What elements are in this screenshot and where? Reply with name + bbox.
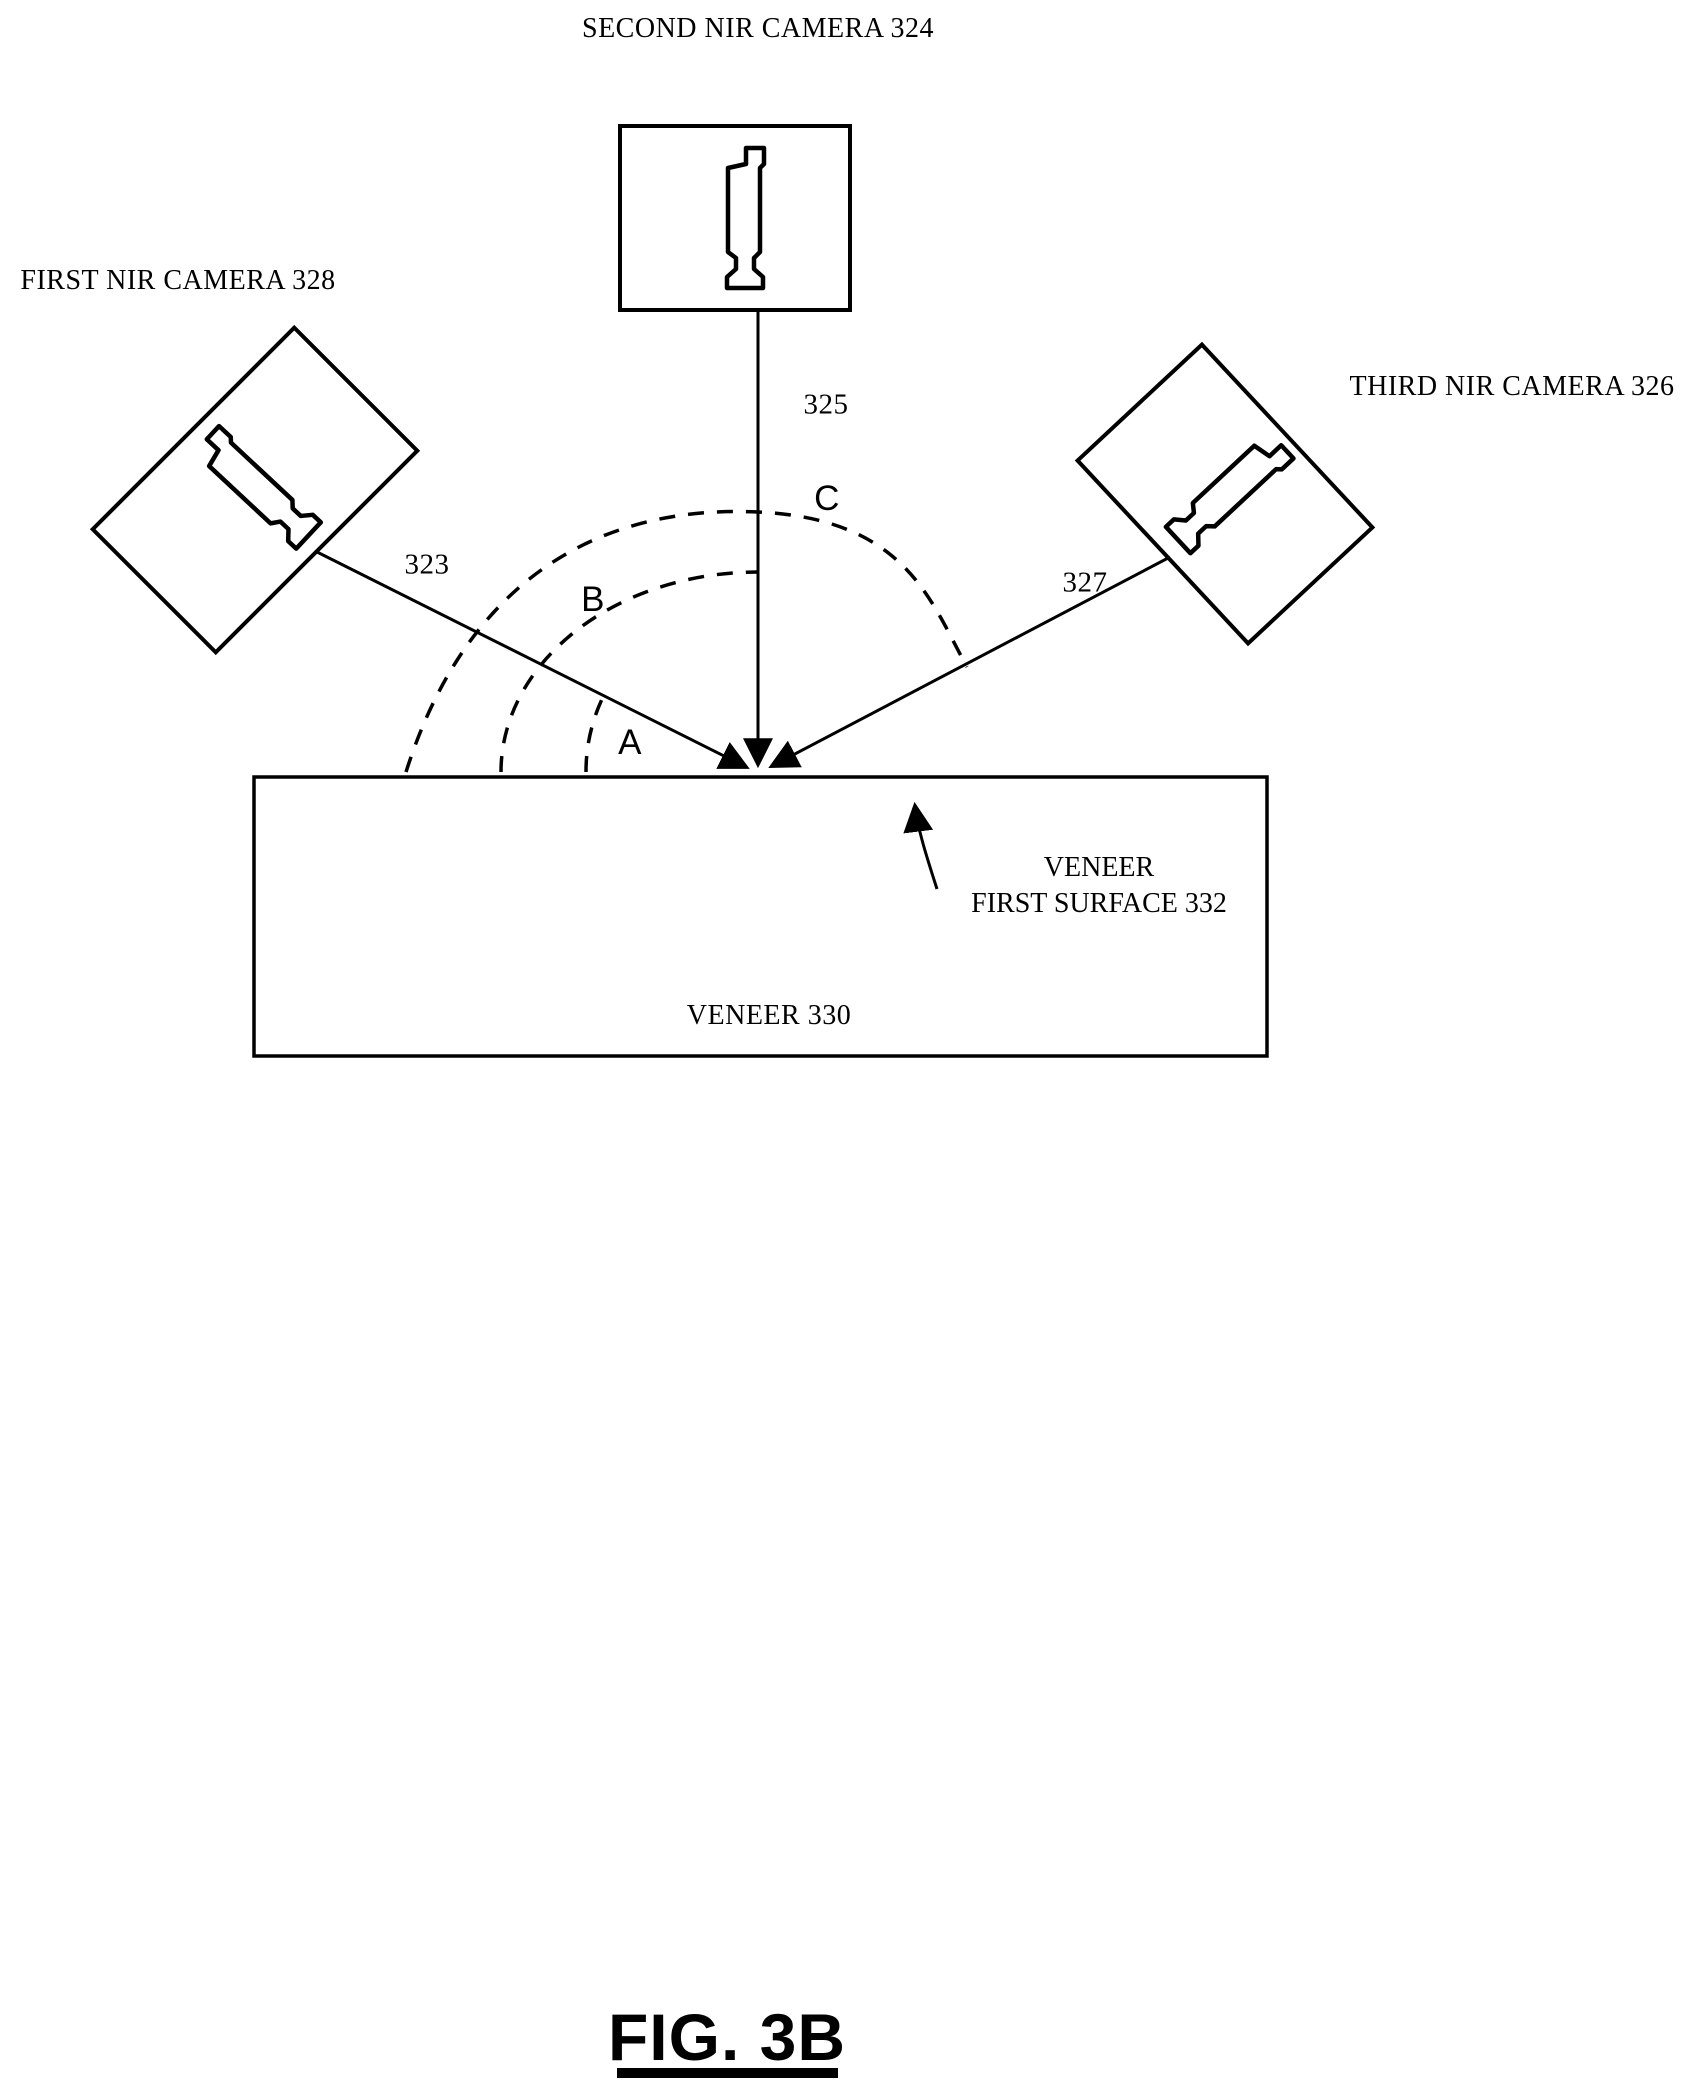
diagram-linework <box>0 0 1696 2097</box>
angle-label-a: A <box>618 723 642 763</box>
angle-arc-a <box>586 695 604 772</box>
second-nir-camera-label: SECOND NIR CAMERA 324 <box>582 13 934 45</box>
third-nir-camera-label: THIRD NIR CAMERA 326 <box>1349 371 1674 403</box>
first-nir-camera-label: FIRST NIR CAMERA 328 <box>20 265 335 297</box>
figure-caption: FIG. 3B <box>608 1999 846 2075</box>
ray-327-line <box>772 557 1170 766</box>
ray-327-label: 327 <box>1063 567 1108 600</box>
veneer-body-label: VENEER 330 <box>687 1000 851 1032</box>
ray-323-line <box>317 552 746 767</box>
veneer-surface-label-line2: FIRST SURFACE 332 <box>971 886 1227 922</box>
veneer-surface-label: VENEER FIRST SURFACE 332 <box>971 850 1227 922</box>
veneer-surface-label-line1: VENEER <box>971 850 1227 886</box>
ray-323-label: 323 <box>405 549 450 582</box>
angle-arc-c <box>406 511 967 772</box>
ray-325-label: 325 <box>804 389 849 422</box>
patent-figure-page: SECOND NIR CAMERA 324 FIRST NIR CAMERA 3… <box>0 0 1696 2097</box>
angle-label-c: C <box>814 479 840 519</box>
figure-caption-underline <box>617 2068 838 2078</box>
angle-label-b: B <box>581 580 605 620</box>
